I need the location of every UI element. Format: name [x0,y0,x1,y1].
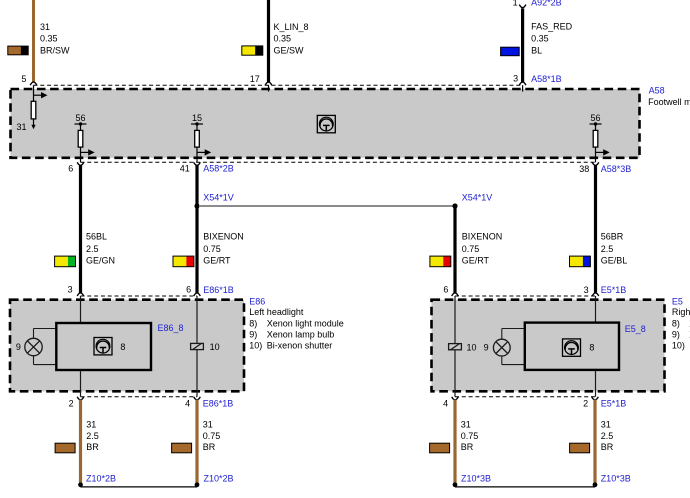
svg-text:BIXENON: BIXENON [203,232,244,242]
svg-text:Xenon lamp bulb: Xenon lamp bulb [267,329,335,339]
svg-text:X54*1V: X54*1V [203,193,234,203]
svg-text:2: 2 [69,398,74,408]
svg-text:0.35: 0.35 [531,33,549,43]
svg-text:8): 8) [249,318,257,328]
svg-text:GE/SW: GE/SW [274,46,305,56]
svg-text:Z10*3B: Z10*3B [601,474,631,484]
svg-text:31: 31 [203,419,213,429]
svg-text:BIXENON: BIXENON [462,232,503,242]
svg-text:31: 31 [40,22,50,32]
svg-text:E86_8: E86_8 [158,323,184,333]
svg-text:FAS_RED: FAS_RED [531,22,573,32]
svg-text:8: 8 [589,343,594,353]
svg-text:56: 56 [590,113,600,123]
svg-text:E5: E5 [672,297,683,307]
svg-text:17: 17 [250,74,260,84]
svg-text:10): 10) [672,340,685,350]
svg-text:6: 6 [443,285,448,295]
svg-text:15: 15 [192,113,202,123]
svg-text:Bi-xenon shutter: Bi-xenon shutter [267,340,333,350]
svg-text:0.75: 0.75 [203,244,221,254]
svg-text:A58*1B: A58*1B [531,74,562,84]
svg-text:3: 3 [513,74,518,84]
svg-text:A58*3B: A58*3B [601,164,632,174]
svg-text:A58*2B: A58*2B [203,163,234,173]
svg-text:56BR: 56BR [601,232,624,242]
svg-text:Left headlight: Left headlight [249,307,304,317]
svg-text:2.5: 2.5 [601,244,614,254]
svg-text:9): 9) [672,329,680,339]
svg-text:E86*1B: E86*1B [203,285,234,295]
svg-text:6: 6 [186,284,191,294]
svg-text:3: 3 [584,285,589,295]
svg-text:0.75: 0.75 [462,244,480,254]
svg-text:3: 3 [68,284,73,294]
svg-text:X54*1V: X54*1V [462,192,493,202]
svg-text:5: 5 [21,74,26,84]
svg-text:41: 41 [180,163,190,173]
svg-text:0.75: 0.75 [461,431,479,441]
svg-text:31: 31 [86,419,96,429]
svg-text:9): 9) [249,329,257,339]
svg-text:BR: BR [86,442,99,452]
svg-text:10: 10 [210,342,220,352]
svg-text:K_LIN_8: K_LIN_8 [274,22,309,32]
svg-text:6: 6 [68,163,73,173]
svg-text:4: 4 [185,398,190,408]
svg-text:E86: E86 [249,297,265,307]
svg-text:2.5: 2.5 [86,244,99,254]
svg-text:BL: BL [531,46,542,56]
svg-text:38: 38 [579,164,589,174]
svg-text:0.35: 0.35 [274,33,292,43]
svg-text:9: 9 [484,343,489,353]
svg-text:E5*1B: E5*1B [601,398,627,408]
svg-text:Z10*2B: Z10*2B [86,474,116,484]
svg-text:2: 2 [583,398,588,408]
svg-text:E86*1B: E86*1B [203,398,234,408]
svg-text:E5*1B: E5*1B [601,285,627,295]
svg-text:10: 10 [467,343,477,353]
svg-text:GE/RT: GE/RT [203,255,231,265]
svg-text:GE/RT: GE/RT [462,255,490,265]
svg-text:A58: A58 [649,86,665,96]
svg-text:2.5: 2.5 [601,431,614,441]
svg-text:31: 31 [601,419,611,429]
svg-text:A92*2B: A92*2B [531,0,562,8]
svg-text:31: 31 [16,122,26,132]
svg-text:8: 8 [120,342,125,352]
svg-text:2.5: 2.5 [86,431,99,441]
svg-text:BR: BR [203,442,216,452]
svg-text:E5_8: E5_8 [625,324,646,334]
svg-text:56: 56 [75,113,85,123]
svg-text:Xenon light module: Xenon light module [267,318,344,328]
svg-text:BR/SW: BR/SW [40,46,70,56]
svg-text:Right headlight: Right headlight [672,307,690,317]
svg-text:GE/GN: GE/GN [86,255,115,265]
svg-text:56BL: 56BL [86,232,107,242]
svg-text:8): 8) [672,318,680,328]
svg-text:9: 9 [16,342,21,352]
svg-text:Z10*3B: Z10*3B [461,474,491,484]
svg-text:Z10*2B: Z10*2B [204,474,234,484]
svg-text:31: 31 [461,419,471,429]
svg-text:10): 10) [249,340,262,350]
svg-text:Footwell module: Footwell module [648,97,690,107]
svg-text:0.75: 0.75 [203,431,221,441]
svg-text:GE/BL: GE/BL [601,255,628,265]
svg-text:BR: BR [461,442,474,452]
svg-text:4: 4 [443,398,448,408]
svg-text:BR: BR [601,442,614,452]
svg-text:0.35: 0.35 [40,33,58,43]
svg-text:1: 1 [513,0,518,7]
